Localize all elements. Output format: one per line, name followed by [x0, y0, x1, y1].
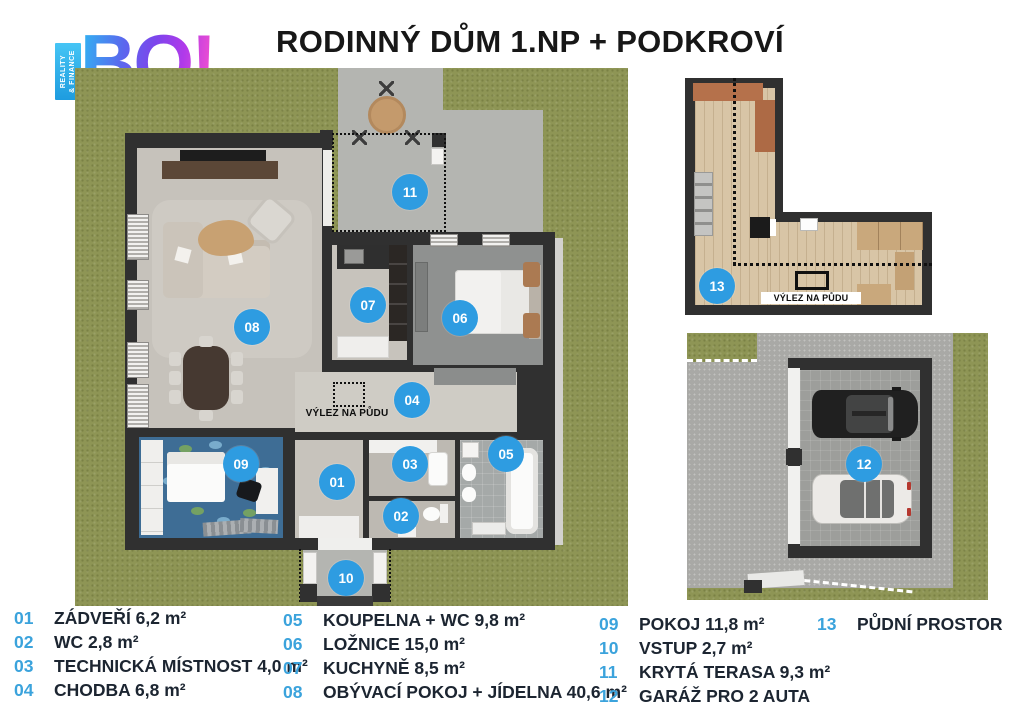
legend-item-number: 10	[599, 636, 628, 660]
floor-plan-page: REALITY & FINANCE BO! RODINNÝ DŮM 1.NP +…	[0, 0, 1024, 724]
room-marker-12: 12	[846, 446, 882, 482]
legend-item-label: ZÁDVEŘÍ 6,2 m²	[54, 608, 186, 628]
legend-item-label: TECHNICKÁ MÍSTNOST 4,0 m²	[54, 656, 308, 676]
legend-item-label: PŮDNÍ PROSTOR	[857, 614, 1003, 634]
legend-item-label: POKOJ 11,8 m²	[639, 614, 764, 634]
garage-door-jamb	[788, 368, 800, 448]
legend-item: 10VSTUP 2,7 m²	[599, 636, 830, 660]
legend-item-number: 05	[283, 608, 312, 632]
legend-item-label: WC 2,8 m²	[54, 632, 139, 652]
legend-item: 05KOUPELNA + WC 9,8 m²	[283, 608, 627, 632]
legend-column: 13PŮDNÍ PROSTOR	[817, 612, 1003, 636]
legend-column: 01ZÁDVEŘÍ 6,2 m² 02WC 2,8 m² 03TECHNICKÁ…	[14, 606, 308, 702]
fence-line	[687, 359, 757, 362]
legend-item-number: 12	[599, 684, 628, 708]
legend-item: 01ZÁDVEŘÍ 6,2 m²	[14, 606, 308, 630]
legend-item-label: LOŽNICE 15,0 m²	[323, 634, 465, 654]
legend-item-number: 13	[817, 612, 846, 636]
garage-door-post	[786, 449, 802, 465]
legend-item-label: GARÁŽ PRO 2 AUTA	[639, 686, 810, 706]
legend-item: 02WC 2,8 m²	[14, 630, 308, 654]
legend-item: 12GARÁŽ PRO 2 AUTA	[599, 684, 830, 708]
legend-item-number: 02	[14, 630, 43, 654]
legend-item-number: 08	[283, 680, 312, 704]
legend-item-label: VSTUP 2,7 m²	[639, 638, 752, 658]
legend-item: 08OBÝVACÍ POKOJ + JÍDELNA 40,6 m²	[283, 680, 627, 704]
garage-walkway-step	[744, 580, 762, 593]
legend-item: 11KRYTÁ TERASA 9,3 m²	[599, 660, 830, 684]
legend-item: 06LOŽNICE 15,0 m²	[283, 632, 627, 656]
legend-column: 09POKOJ 11,8 m² 10VSTUP 2,7 m² 11KRYTÁ T…	[599, 612, 830, 708]
legend-item: 13PŮDNÍ PROSTOR	[817, 612, 1003, 636]
legend-item-number: 03	[14, 654, 43, 678]
legend-item-label: CHODBA 6,8 m²	[54, 680, 186, 700]
legend-item-number: 06	[283, 632, 312, 656]
legend-item-number: 11	[599, 660, 628, 684]
legend-item-label: KUCHYNĚ 8,5 m²	[323, 658, 465, 678]
legend-item-label: KOUPELNA + WC 9,8 m²	[323, 610, 525, 630]
legend-item-label: OBÝVACÍ POKOJ + JÍDELNA 40,6 m²	[323, 682, 627, 702]
garage-door-jamb	[788, 466, 800, 544]
legend-item: 04CHODBA 6,8 m²	[14, 678, 308, 702]
legend-item-number: 04	[14, 678, 43, 702]
car-black	[812, 390, 918, 438]
legend-item: 09POKOJ 11,8 m²	[599, 612, 830, 636]
legend-item: 03TECHNICKÁ MÍSTNOST 4,0 m²	[14, 654, 308, 678]
legend-item-label: KRYTÁ TERASA 9,3 m²	[639, 662, 830, 682]
legend-item: 07KUCHYNĚ 8,5 m²	[283, 656, 627, 680]
legend-item-number: 09	[599, 612, 628, 636]
legend-column: 05KOUPELNA + WC 9,8 m² 06LOŽNICE 15,0 m²…	[283, 608, 627, 704]
legend-item-number: 07	[283, 656, 312, 680]
legend-item-number: 01	[14, 606, 43, 630]
